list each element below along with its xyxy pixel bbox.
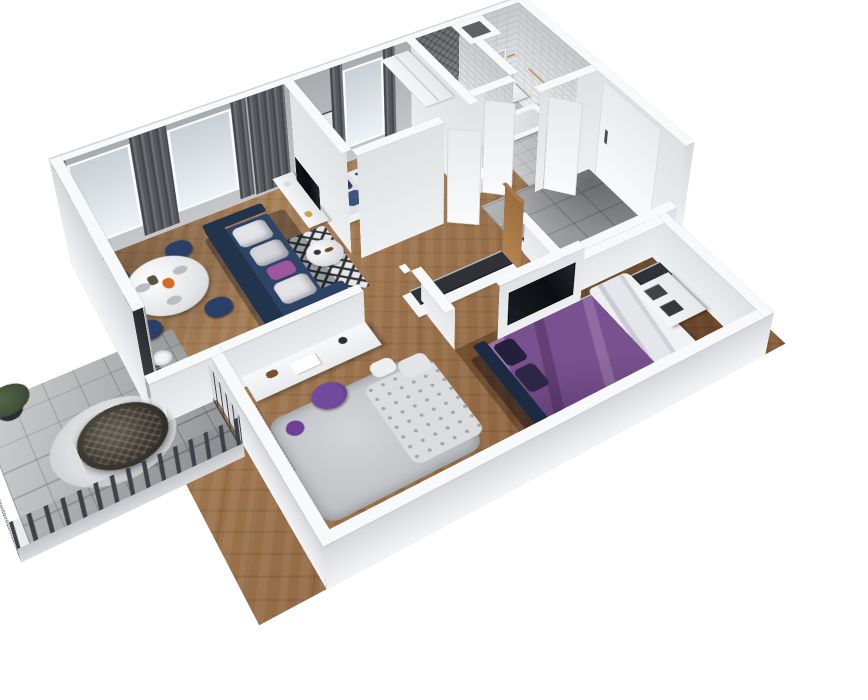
plate xyxy=(165,294,183,307)
apartment-3d-model xyxy=(0,90,786,700)
table-decor xyxy=(312,249,322,256)
sideboard-decor xyxy=(282,180,292,187)
duct-shaft-void xyxy=(461,21,491,38)
table-decor xyxy=(324,246,335,253)
kids-door-open xyxy=(447,128,482,225)
storage-box xyxy=(643,284,668,301)
door-handle-icon xyxy=(604,129,608,145)
living-window-a xyxy=(166,108,239,212)
plate xyxy=(171,264,189,276)
kids-window xyxy=(342,57,385,149)
sideboard-decor xyxy=(303,210,313,218)
desk-lamp-icon xyxy=(337,336,349,345)
floor-plan-render xyxy=(0,0,868,700)
brass-fixture xyxy=(507,53,515,58)
figurine xyxy=(265,368,280,379)
papers xyxy=(289,353,321,375)
storage-box xyxy=(659,299,684,316)
orange-pitcher xyxy=(161,276,177,290)
wc-door-open xyxy=(482,100,516,197)
